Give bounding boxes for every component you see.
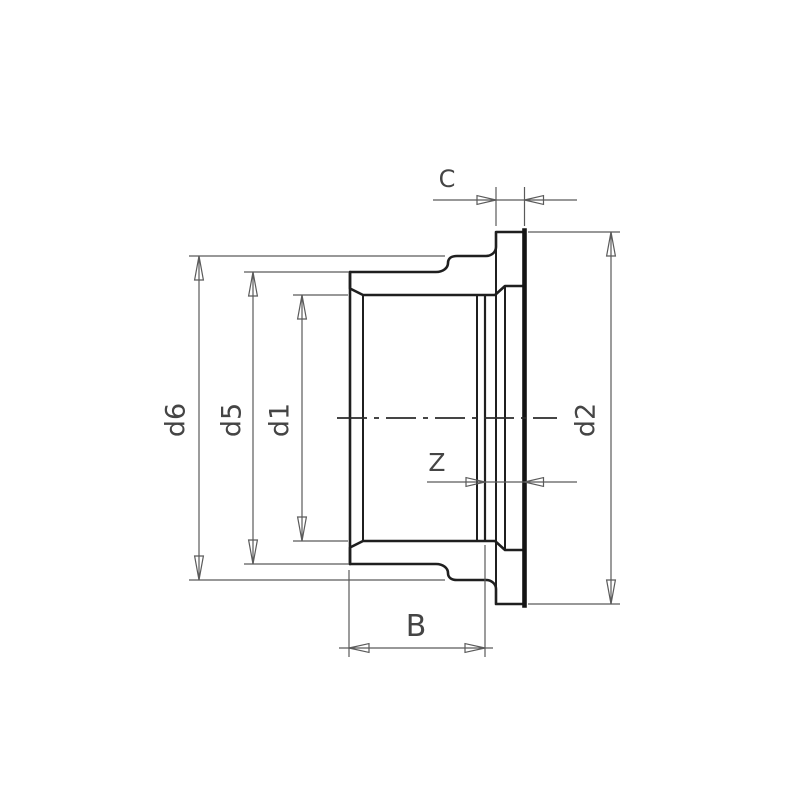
technical-drawing-canvas: C d6 d5 d1 d2 Z — [0, 0, 800, 800]
part-upper-wall-section — [350, 232, 525, 295]
dimension-d1-socket-bore-diameter: d1 — [265, 295, 349, 541]
part-lower-wall-section — [350, 541, 525, 604]
flange-adapter-section-drawing: C d6 d5 d1 d2 Z — [0, 0, 800, 800]
dimension-b-socket-depth: B — [339, 545, 493, 657]
dim-label-b: B — [406, 609, 427, 644]
dim-label-z: Z — [428, 448, 445, 477]
dim-label-d2: d2 — [571, 403, 602, 437]
part-cross-section — [337, 231, 557, 606]
dim-label-d1: d1 — [265, 403, 296, 437]
dim-label-c: C — [439, 165, 456, 193]
dimension-z-laying-length: Z — [427, 448, 577, 486]
dimension-c-flange-thickness: C — [433, 165, 577, 226]
dim-label-d5: d5 — [217, 403, 248, 437]
dim-label-d6: d6 — [161, 403, 192, 437]
